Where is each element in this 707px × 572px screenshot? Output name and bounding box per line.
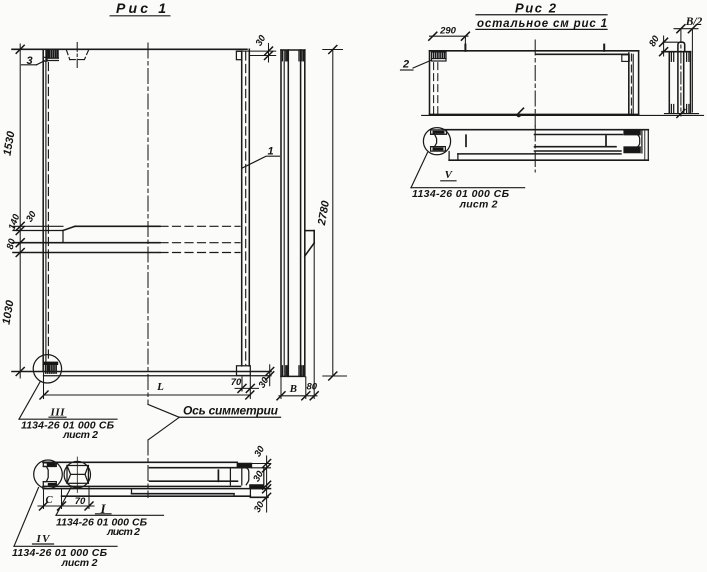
svg-text:2780: 2780 xyxy=(316,199,332,227)
svg-text:Рис 2: Рис 2 xyxy=(515,1,557,16)
svg-text:1: 1 xyxy=(267,146,273,158)
svg-text:1030: 1030 xyxy=(1,299,17,326)
svg-text:80: 80 xyxy=(5,237,19,251)
svg-text:70: 70 xyxy=(75,496,86,507)
svg-text:лист 2: лист 2 xyxy=(62,429,98,441)
svg-text:80: 80 xyxy=(307,382,318,393)
svg-text:30: 30 xyxy=(252,444,267,459)
svg-text:30: 30 xyxy=(252,499,267,514)
svg-text:1530: 1530 xyxy=(2,130,18,157)
svg-text:С: С xyxy=(45,495,53,506)
svg-text:лист 2: лист 2 xyxy=(459,198,498,210)
svg-text:Рис 1: Рис 1 xyxy=(116,0,166,16)
svg-text:70: 70 xyxy=(231,377,242,388)
svg-text:2: 2 xyxy=(402,59,409,71)
svg-text:V: V xyxy=(445,169,454,181)
svg-text:остальное см рис 1: остальное см рис 1 xyxy=(477,18,607,30)
svg-text:30: 30 xyxy=(24,209,39,224)
svg-text:290: 290 xyxy=(439,25,457,36)
svg-text:30: 30 xyxy=(254,33,269,48)
svg-text:III: III xyxy=(50,407,66,419)
svg-text:В/2: В/2 xyxy=(685,16,703,28)
svg-text:лист 2: лист 2 xyxy=(61,557,98,569)
svg-text:IV: IV xyxy=(36,533,52,545)
svg-text:Ось симметрии: Ось симметрии xyxy=(183,404,279,418)
svg-text:L: L xyxy=(156,381,164,393)
svg-text:лист 2: лист 2 xyxy=(106,526,140,538)
svg-text:В: В xyxy=(289,383,297,395)
svg-text:3: 3 xyxy=(26,55,32,67)
svg-text:I: I xyxy=(99,501,106,516)
